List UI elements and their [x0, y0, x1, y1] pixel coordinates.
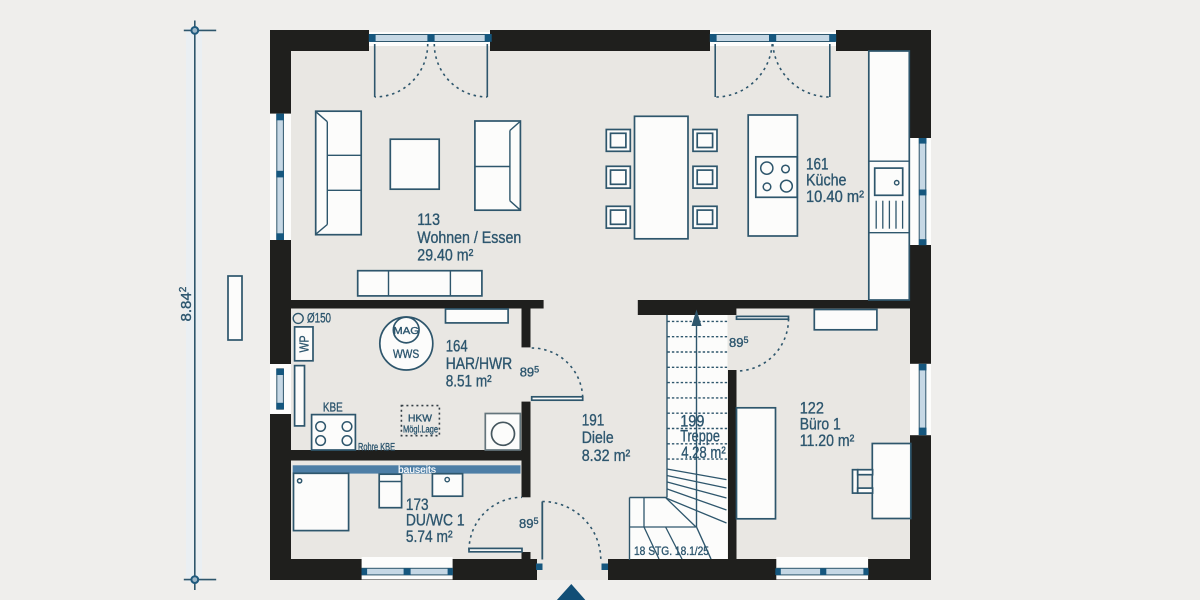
svg-text:WWS: WWS	[393, 349, 419, 361]
svg-text:8.51 m²: 8.51 m²	[446, 372, 492, 391]
svg-text:WP: WP	[297, 336, 312, 353]
svg-text:5.74 m²: 5.74 m²	[406, 527, 453, 546]
svg-text:29.40 m²: 29.40 m²	[417, 245, 473, 264]
svg-text:Ø150: Ø150	[307, 311, 331, 326]
svg-text:113: 113	[417, 210, 440, 229]
svg-text:Diele: Diele	[582, 428, 614, 447]
svg-text:164: 164	[446, 337, 468, 356]
svg-text:Wohnen / Essen: Wohnen / Essen	[417, 228, 521, 247]
svg-text:11.20 m²: 11.20 m²	[800, 431, 855, 450]
svg-text:KBE: KBE	[323, 400, 343, 415]
svg-text:Rohre KBE: Rohre KBE	[358, 442, 395, 454]
svg-text:191: 191	[582, 411, 605, 430]
svg-text:10.40 m²: 10.40 m²	[806, 187, 864, 206]
svg-text:18 STG. 18.1/25: 18 STG. 18.1/25	[634, 544, 709, 558]
svg-text:HKW: HKW	[408, 414, 433, 425]
svg-text:bauseits: bauseits	[398, 465, 436, 476]
svg-text:4.28 m²: 4.28 m²	[681, 443, 726, 462]
svg-text:Mögl.Lage: Mögl.Lage	[403, 425, 438, 436]
svg-text:MAG: MAG	[393, 325, 419, 337]
svg-text:HAR/HWR: HAR/HWR	[446, 354, 513, 373]
svg-text:8.32 m²: 8.32 m²	[582, 446, 631, 465]
